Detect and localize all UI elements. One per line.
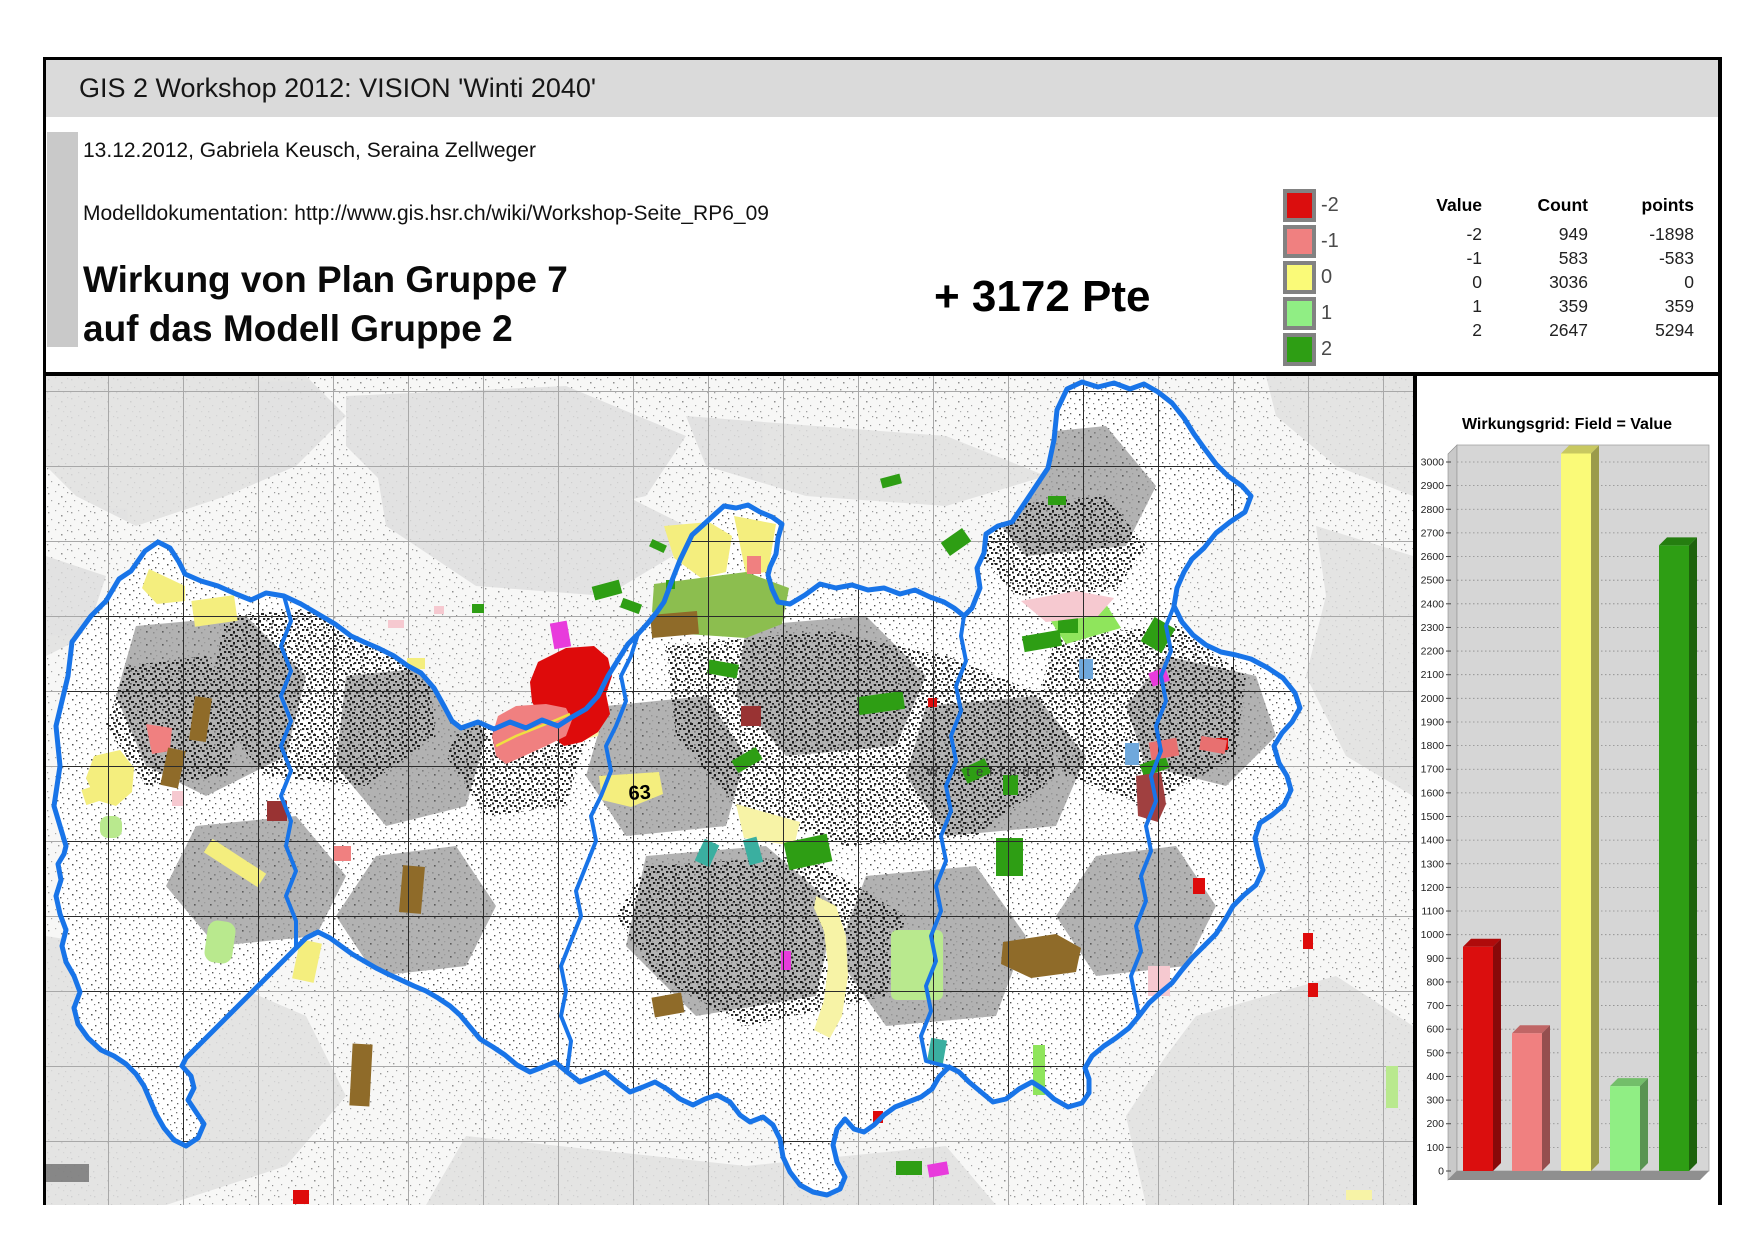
chart-y-axis: 0100200300400500600700800900100011001200… (1421, 457, 1451, 1178)
svg-text:2400: 2400 (1421, 598, 1445, 610)
svg-text:3000: 3000 (1421, 457, 1445, 469)
impact-map: Winterthur 63 (46, 376, 1417, 1205)
authors-line: 13.12.2012, Gabriela Keusch, Seraina Zel… (83, 139, 536, 163)
table-cell: 949 (1482, 222, 1588, 246)
svg-text:100: 100 (1426, 1142, 1444, 1154)
svg-text:1500: 1500 (1421, 811, 1445, 823)
legend-label: -2 (1321, 194, 1339, 217)
report-frame: GIS 2 Workshop 2012: VISION 'Winti 2040'… (43, 57, 1722, 1205)
svg-text:1400: 1400 (1421, 835, 1445, 847)
content-row: Winterthur 63 Wirkungsgrid: Field = Va (46, 372, 1718, 1205)
table-cell: 5294 (1588, 318, 1694, 342)
chart-left-wall (1448, 445, 1457, 1180)
svg-text:1200: 1200 (1421, 882, 1445, 894)
table-row: 226475294 (1398, 318, 1694, 342)
svg-text:1000: 1000 (1421, 929, 1445, 941)
impact-chart-panel: Wirkungsgrid: Field = Value 010020030040… (1417, 376, 1718, 1205)
chart-floor (1448, 1171, 1709, 1180)
svg-text:1300: 1300 (1421, 858, 1445, 870)
table-cell: -2 (1398, 222, 1482, 246)
table-cell: 0 (1398, 270, 1482, 294)
legend-swatch (1283, 297, 1316, 330)
app-title: GIS 2 Workshop 2012: VISION 'Winti 2040' (79, 73, 596, 103)
svg-text:1100: 1100 (1421, 906, 1444, 918)
legend-item: 1 (1283, 295, 1339, 331)
legend-label: 0 (1321, 266, 1332, 289)
legend-item: -1 (1283, 223, 1339, 259)
table-header-row: ValueCountpoints (1398, 195, 1694, 222)
impact-bar-chart: Wirkungsgrid: Field = Value 010020030040… (1417, 376, 1715, 1205)
map-label-area-code: 63 (628, 781, 652, 804)
svg-text:1800: 1800 (1421, 740, 1445, 752)
svg-text:1600: 1600 (1421, 787, 1445, 799)
svg-text:2700: 2700 (1421, 527, 1445, 539)
legend-item: 0 (1283, 259, 1339, 295)
impact-legend: -2-1012 (1283, 187, 1339, 367)
svg-text:2900: 2900 (1421, 480, 1445, 492)
svg-text:2100: 2100 (1421, 669, 1445, 681)
legend-label: -1 (1321, 230, 1339, 253)
svg-text:0: 0 (1438, 1166, 1444, 1178)
svg-text:400: 400 (1426, 1071, 1444, 1083)
window-titlebar: GIS 2 Workshop 2012: VISION 'Winti 2040' (46, 60, 1718, 117)
legend-swatch (1283, 333, 1316, 366)
legend-item: 2 (1283, 331, 1339, 367)
table-cell: 2 (1398, 318, 1482, 342)
table-column-header: points (1588, 195, 1694, 222)
table-row: 030360 (1398, 270, 1694, 294)
table-cell: -583 (1588, 246, 1694, 270)
table-cell: 359 (1588, 294, 1694, 318)
table-cell: 583 (1482, 246, 1588, 270)
svg-text:300: 300 (1426, 1095, 1444, 1107)
svg-text:800: 800 (1426, 976, 1444, 988)
page-title: Wirkung von Plan Gruppe 7 auf das Modell… (83, 255, 568, 353)
chart-title: Wirkungsgrid: Field = Value (1462, 416, 1672, 433)
page-title-line1: Wirkung von Plan Gruppe 7 (83, 255, 568, 304)
legend-label: 1 (1321, 302, 1332, 325)
svg-text:2300: 2300 (1421, 622, 1445, 634)
svg-text:700: 700 (1426, 1000, 1444, 1012)
value-count-points-table: ValueCountpoints -2949-1898-1583-5830303… (1398, 195, 1694, 342)
table-cell: -1 (1398, 246, 1482, 270)
svg-text:200: 200 (1426, 1118, 1444, 1130)
topo-map-svg: Winterthur 63 (46, 376, 1413, 1205)
documentation-link[interactable]: Modelldokumentation: http://www.gis.hsr.… (83, 202, 769, 226)
table-cell: 1 (1398, 294, 1482, 318)
svg-text:2500: 2500 (1421, 575, 1445, 587)
legend-item: -2 (1283, 187, 1339, 223)
legend-swatch (1283, 225, 1316, 258)
page-title-line2: auf das Modell Gruppe 2 (83, 304, 568, 353)
table-cell: -1898 (1588, 222, 1694, 246)
decorative-strip (47, 132, 78, 347)
legend-label: 2 (1321, 338, 1332, 361)
report-header: 13.12.2012, Gabriela Keusch, Seraina Zel… (46, 117, 1718, 372)
table-cell: 0 (1588, 270, 1694, 294)
table-row: 1359359 (1398, 294, 1694, 318)
table-column-header: Count (1482, 195, 1588, 222)
svg-text:600: 600 (1426, 1024, 1444, 1036)
legend-swatch (1283, 261, 1316, 294)
table-row: -1583-583 (1398, 246, 1694, 270)
svg-text:500: 500 (1426, 1047, 1444, 1059)
table-column-header: Value (1398, 195, 1482, 222)
table-cell: 359 (1482, 294, 1588, 318)
svg-text:2600: 2600 (1421, 551, 1445, 563)
svg-text:2000: 2000 (1421, 693, 1445, 705)
svg-text:2200: 2200 (1421, 646, 1445, 658)
table-cell: 3036 (1482, 270, 1588, 294)
table-row: -2949-1898 (1398, 222, 1694, 246)
points-total: + 3172 Pte (934, 272, 1151, 322)
village-cluster (46, 1164, 89, 1182)
svg-text:1700: 1700 (1421, 764, 1445, 776)
svg-text:900: 900 (1426, 953, 1444, 965)
table-cell: 2647 (1482, 318, 1588, 342)
legend-swatch (1283, 189, 1316, 222)
svg-text:2800: 2800 (1421, 504, 1445, 516)
svg-text:1900: 1900 (1421, 716, 1445, 728)
